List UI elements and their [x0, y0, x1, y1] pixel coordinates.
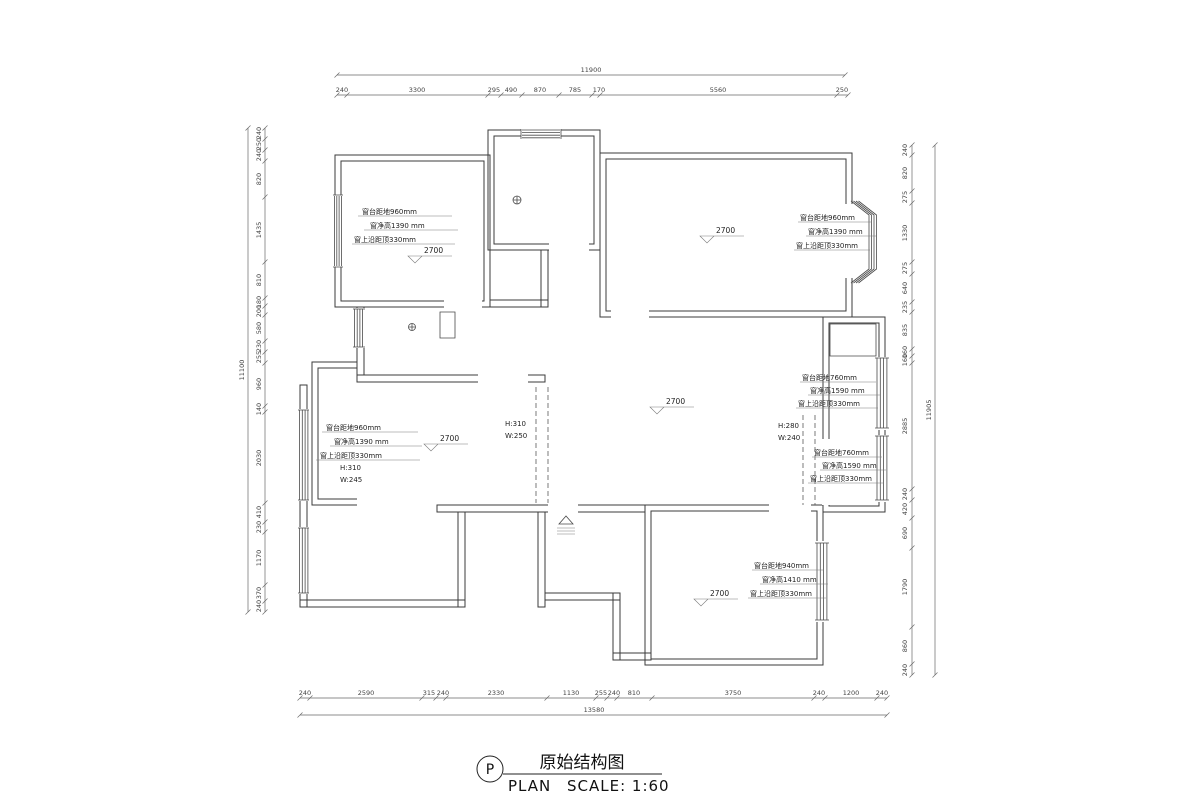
window-icon	[521, 128, 561, 139]
wall-room-bottom-right-inner	[651, 511, 817, 659]
dim-segment-label: 785	[569, 86, 581, 94]
wall-room-top-middle	[488, 130, 600, 250]
dim-segment-label: 2590	[358, 689, 375, 697]
door-opening	[611, 310, 649, 319]
dim-segment-label: 835	[901, 324, 909, 336]
annotation-line: 窗台距地960mm	[326, 423, 381, 432]
dim-segment-label: 370	[255, 587, 263, 599]
beam-size-labels: H:310 W:245 H:310 W:250 H:280 W:240	[340, 420, 800, 484]
ceiling-height-label: 2700	[666, 397, 685, 406]
annotation-line: 窗台距地760mm	[814, 448, 869, 457]
dim-segment-label: 2885	[901, 418, 909, 435]
wall-entry-west	[538, 512, 545, 607]
wall-room-bottom-right	[645, 505, 823, 665]
wall-room-top-middle-inner	[494, 136, 594, 244]
plan-title-cn: 原始结构图	[540, 753, 625, 773]
dim-segment-label: 690	[901, 527, 909, 539]
plan-scale: SCALE: 1:60	[567, 777, 670, 795]
dim-segment-label: 275	[901, 191, 909, 203]
dim-segment-label: 240	[813, 689, 825, 697]
dim-segment-label: 240	[901, 144, 909, 156]
window-icon	[875, 357, 889, 430]
wall-closet-east	[541, 250, 548, 307]
hall-stub-box	[440, 312, 455, 338]
dim-segment-label: 240	[336, 86, 348, 94]
annotation-line: 窗净高1590 mm	[810, 386, 865, 395]
annotation-line: 窗净高1390 mm	[334, 437, 389, 446]
dim-line-right-total	[933, 143, 938, 678]
door-opening	[478, 374, 528, 384]
annotation-line: 窗上沿距顶330mm	[798, 399, 860, 408]
dim-segment-label: 240	[255, 149, 263, 161]
window-icon	[298, 527, 309, 594]
dim-segment-label: 2030	[255, 450, 263, 467]
dim-segment-label: 240	[255, 127, 263, 139]
dim-segment-label: 420	[901, 503, 909, 515]
door-opening	[549, 243, 589, 252]
window-icon	[333, 195, 343, 267]
dim-segment-label: 490	[505, 86, 517, 94]
annotation-line: 窗上沿距顶330mm	[750, 589, 812, 598]
wall-entry-south	[545, 593, 620, 600]
window-icon	[298, 409, 309, 501]
annotation-line: 窗台距地960mm	[362, 207, 417, 216]
dim-segment-label: 1200	[843, 689, 860, 697]
annotation-line: 窗净高1390 mm	[370, 221, 425, 230]
dim-segment-label: 810	[628, 689, 640, 697]
beam-size-label: W:240	[778, 434, 800, 442]
window-annotations: 窗台距地960mm 窗净高1390 mm 窗上沿距顶330mm 窗台距地960m…	[316, 207, 886, 598]
dim-total-label-right: 11905	[925, 400, 933, 421]
ceiling-height-label: 2700	[440, 434, 459, 443]
annotation-line: 窗上沿距顶330mm	[796, 241, 858, 250]
floor-plan-sheet: 2700 2700 2700 2700 2700 窗台距地960mm 窗净高13…	[0, 0, 1200, 800]
ceiling-height-marker: 2700	[408, 246, 452, 263]
ceiling-height-marker: 2700	[650, 397, 694, 414]
dim-line-left-segments	[263, 126, 268, 615]
wall-room-top-left	[335, 155, 490, 307]
ceiling-height-label: 2700	[716, 226, 735, 235]
annotation-line: 窗净高1590 mm	[822, 461, 877, 470]
window-icon	[875, 435, 889, 502]
dim-segment-label: 240	[437, 689, 449, 697]
dim-segment-label: 240	[255, 600, 263, 612]
window-annotation: 窗台距地960mm 窗净高1390 mm 窗上沿距顶330mm	[316, 423, 422, 460]
wall-notch-east	[458, 512, 465, 607]
dim-segment-label: 5560	[710, 86, 727, 94]
dim-segment-label: 1130	[563, 689, 580, 697]
dim-line-bottom-segments	[298, 696, 890, 701]
dim-segment-label: 2330	[488, 689, 505, 697]
dim-line-right-segments	[910, 143, 915, 678]
ceiling-height-marker: 2700	[700, 226, 744, 243]
dim-segment-label: 275	[901, 262, 909, 274]
wall-room-top-left-inner	[341, 161, 484, 301]
dim-segment-label: 1790	[901, 579, 909, 596]
beam-size-label: W:250	[505, 432, 527, 440]
wall-closet-south	[490, 300, 548, 307]
floor-plan-svg: 2700 2700 2700 2700 2700 窗台距地960mm 窗净高13…	[0, 0, 1200, 800]
window-icon	[353, 308, 365, 348]
ceiling-lamp-icon	[409, 324, 416, 331]
dim-segment-label: 230	[255, 521, 263, 533]
dim-segment-label: 240	[608, 689, 620, 697]
ceiling-lamp-icon	[513, 196, 521, 204]
dim-segment-label: 240	[901, 488, 909, 500]
beam-size-label: H:310	[340, 464, 361, 472]
window-annotation: 窗台距地960mm 窗净高1390 mm 窗上沿距顶330mm	[794, 213, 876, 250]
door-opening	[769, 504, 811, 514]
ceiling-height-label: 2700	[424, 246, 443, 255]
dim-segment-label: 810	[255, 274, 263, 286]
dim-segment-label: 170	[593, 86, 605, 94]
dim-segment-label: 160	[901, 354, 909, 366]
title-block: P 原始结构图 PLAN SCALE: 1:60	[477, 753, 670, 795]
dim-segment-label: 870	[534, 86, 546, 94]
dim-segment-label: 230	[255, 340, 263, 352]
annotation-line: 窗上沿距顶330mm	[810, 474, 872, 483]
beam-size-label: W:245	[340, 476, 362, 484]
dim-segment-label: 140	[255, 403, 263, 415]
dim-segment-label: 640	[901, 282, 909, 294]
ceiling-height-marker: 2700	[424, 434, 468, 451]
annotation-line: 窗台距地760mm	[802, 373, 857, 382]
dim-segment-label: 315	[423, 689, 435, 697]
beam-size-label: H:280	[778, 422, 799, 430]
annotation-line: 窗上沿距顶330mm	[354, 235, 416, 244]
flue-box	[830, 324, 876, 356]
dim-segment-label: 255	[255, 351, 263, 363]
annotation-line: 窗上沿距顶330mm	[320, 451, 382, 460]
dim-segment-label: 240	[299, 689, 311, 697]
dim-segment-label: 1170	[255, 550, 263, 567]
dim-total-label-left: 11100	[238, 360, 246, 381]
dim-segment-label: 410	[255, 506, 263, 518]
dim-segment-label: 250	[255, 138, 263, 150]
entry-arrow-icon	[557, 516, 575, 534]
dim-segment-label: 860	[901, 640, 909, 652]
ceiling-height-label: 2700	[710, 589, 729, 598]
dim-segment-label: 820	[255, 173, 263, 185]
plan-symbol-letter: P	[486, 762, 494, 778]
wall-living-south	[300, 600, 465, 607]
annotation-line: 窗台距地940mm	[754, 561, 809, 570]
plan-label: PLAN	[508, 777, 551, 795]
dim-line-left-total	[246, 126, 251, 615]
dim-segment-label: 240	[901, 664, 909, 676]
dim-segment-label: 580	[255, 322, 263, 334]
dim-segment-label: 960	[255, 378, 263, 390]
dim-segment-label: 820	[901, 167, 909, 179]
dim-segment-label: 240	[876, 689, 888, 697]
dim-segment-label: 250	[836, 86, 848, 94]
dim-total-label-bottom: 13580	[584, 706, 605, 714]
dim-segment-label: 1435	[255, 222, 263, 239]
annotation-line: 窗净高1410 mm	[762, 575, 817, 584]
dim-segment-label: 200	[255, 305, 263, 317]
dim-total-label-top: 11900	[581, 66, 602, 74]
dim-segment-label: 3300	[409, 86, 426, 94]
ceiling-height-marker: 2700	[694, 589, 738, 606]
wall-entry-step-vert	[613, 593, 620, 660]
annotation-line: 窗净高1390 mm	[808, 227, 863, 236]
entry-door-opening	[548, 504, 578, 514]
window-icon	[815, 541, 829, 622]
dim-segment-label: 295	[488, 86, 500, 94]
window-annotation: 窗台距地760mm 窗净高1590 mm 窗上沿距顶330mm	[808, 448, 886, 483]
dim-segment-label: 255	[595, 689, 607, 697]
annotation-line: 窗台距地960mm	[800, 213, 855, 222]
wall-entry-north	[437, 505, 645, 512]
dim-segment-label: 235	[901, 301, 909, 313]
window-annotation: 窗台距地760mm 窗净高1590 mm 窗上沿距顶330mm	[796, 373, 880, 408]
dim-segment-label: 1330	[901, 225, 909, 242]
beam-size-label: H:310	[505, 420, 526, 428]
door-opening	[444, 300, 482, 309]
window-annotation: 窗台距地960mm 窗净高1390 mm 窗上沿距顶330mm	[352, 207, 458, 244]
dim-segment-label: 3750	[725, 689, 742, 697]
